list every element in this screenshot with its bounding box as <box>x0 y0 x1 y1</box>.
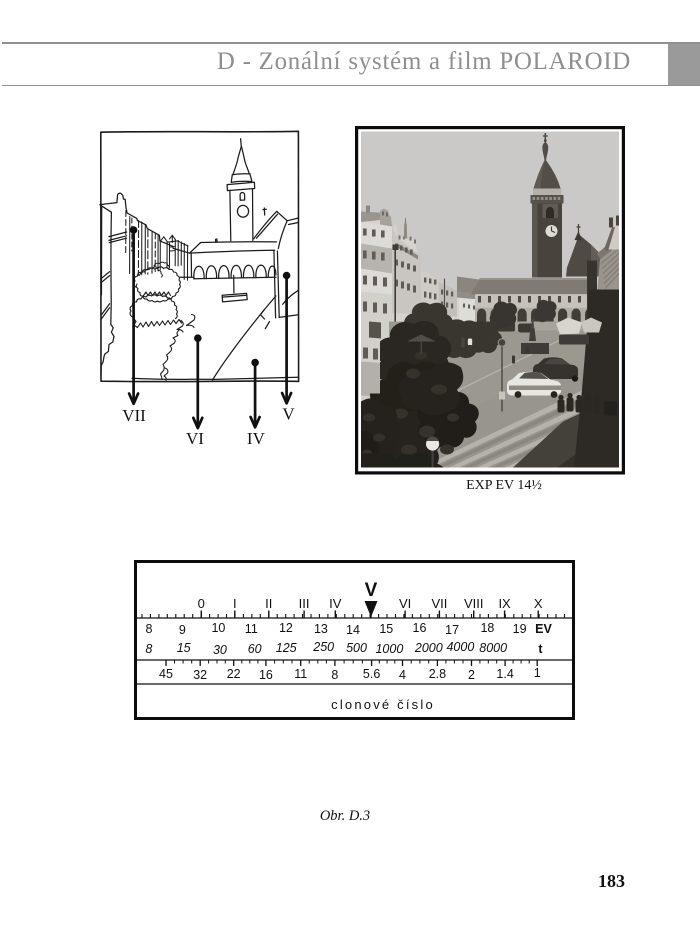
svg-text:III: III <box>299 596 310 611</box>
svg-text:32: 32 <box>193 668 207 682</box>
svg-text:V: V <box>282 405 295 424</box>
svg-text:1000: 1000 <box>375 642 403 656</box>
svg-text:clonové číslo: clonové číslo <box>331 697 435 712</box>
svg-text:125: 125 <box>276 641 297 655</box>
svg-text:IV: IV <box>247 429 266 448</box>
svg-text:8000: 8000 <box>479 641 507 655</box>
svg-text:16: 16 <box>413 621 427 635</box>
svg-text:2.8: 2.8 <box>429 667 446 681</box>
svg-text:8: 8 <box>331 668 338 682</box>
svg-text:I: I <box>233 596 237 611</box>
svg-text:12: 12 <box>279 621 293 635</box>
svg-text:4: 4 <box>399 668 406 682</box>
svg-text:60: 60 <box>248 642 262 656</box>
svg-text:X: X <box>534 596 543 611</box>
svg-text:15: 15 <box>379 622 393 636</box>
svg-text:5.6: 5.6 <box>363 667 380 681</box>
svg-text:500: 500 <box>346 641 367 655</box>
svg-text:250: 250 <box>312 640 334 654</box>
svg-text:IV: IV <box>329 596 342 611</box>
svg-text:EV: EV <box>535 622 552 636</box>
svg-text:17: 17 <box>445 623 459 637</box>
svg-text:11: 11 <box>245 622 258 636</box>
svg-text:14: 14 <box>346 623 360 637</box>
svg-text:II: II <box>265 596 272 611</box>
svg-text:VIII: VIII <box>464 596 484 611</box>
svg-text:9: 9 <box>179 623 186 637</box>
svg-text:2000: 2000 <box>414 641 443 655</box>
svg-text:22: 22 <box>227 667 241 681</box>
svg-text:2: 2 <box>468 668 475 682</box>
svg-text:8: 8 <box>146 622 153 636</box>
svg-text:10: 10 <box>211 621 225 635</box>
svg-text:VII: VII <box>431 596 447 611</box>
svg-text:VI: VI <box>186 429 204 448</box>
svg-text:8: 8 <box>145 642 152 656</box>
svg-text:1: 1 <box>534 666 541 680</box>
svg-text:4000: 4000 <box>446 640 474 654</box>
svg-text:1.4: 1.4 <box>496 667 513 681</box>
svg-text:19: 19 <box>513 622 527 636</box>
svg-text:VII: VII <box>122 406 146 425</box>
svg-text:IX: IX <box>498 596 511 611</box>
svg-text:V: V <box>365 580 378 601</box>
svg-text:0: 0 <box>198 596 205 611</box>
svg-text:18: 18 <box>480 621 494 635</box>
svg-text:45: 45 <box>159 667 173 681</box>
svg-text:VI: VI <box>399 596 411 611</box>
svg-text:13: 13 <box>314 622 328 636</box>
svg-text:11: 11 <box>294 667 307 681</box>
svg-text:30: 30 <box>213 643 227 657</box>
svg-text:15: 15 <box>177 641 191 655</box>
svg-text:16: 16 <box>259 668 273 682</box>
